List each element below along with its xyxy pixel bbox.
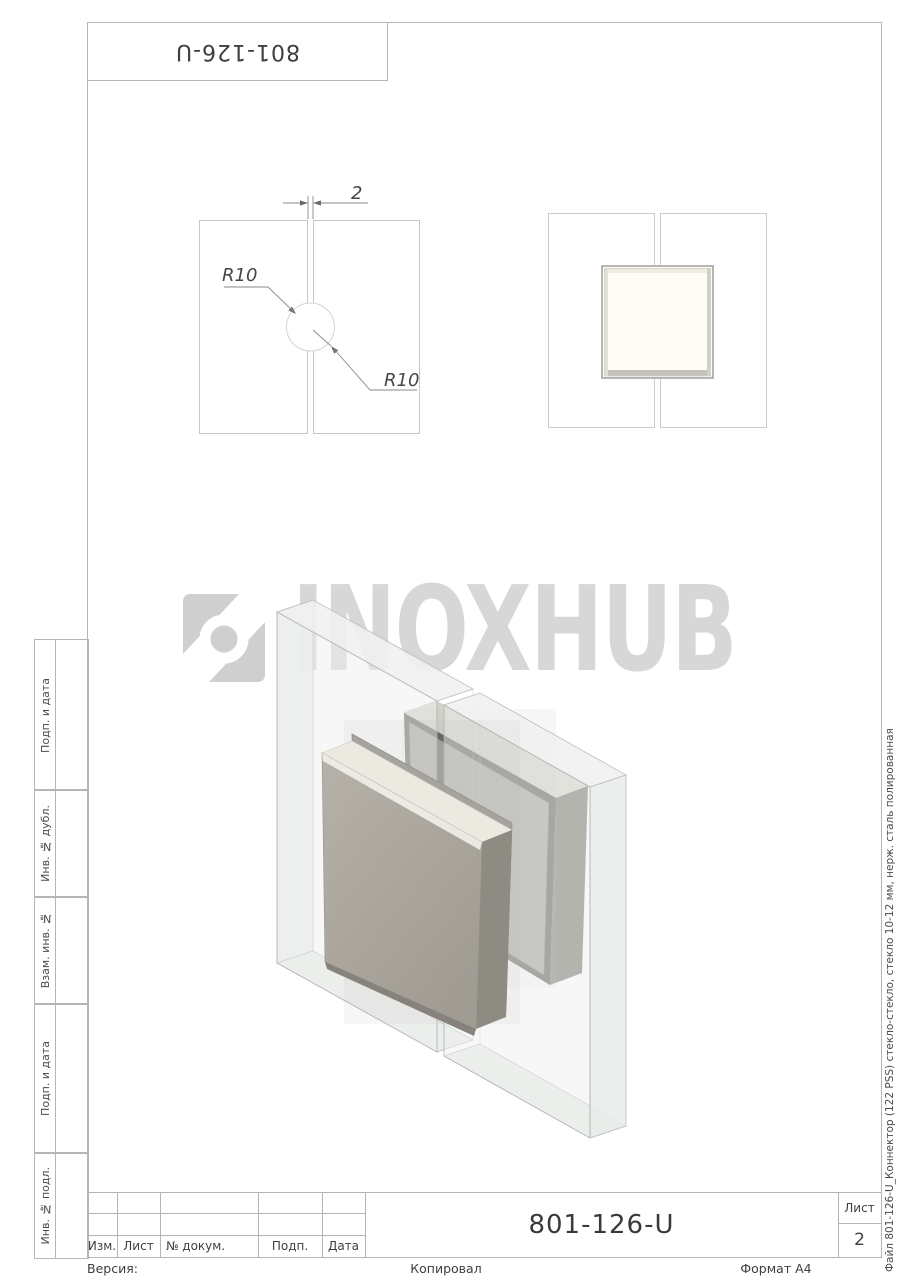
drawing-frame <box>87 22 882 1258</box>
sidebar-blank-cell <box>56 790 88 897</box>
file-note: Файл 801-126-U_Коннектор (122 PSS) стекл… <box>884 792 898 1272</box>
sidebar-label: Инв. № дубл. <box>39 805 52 882</box>
top-reference-box: 801-126-U <box>87 22 388 81</box>
sidebar-box-inv-dupl: Инв. № дубл. <box>34 789 89 898</box>
sidebar-box-sign-date-2: Подп. и дата <box>34 1003 89 1154</box>
stamp-col-list: Лист <box>117 1235 160 1257</box>
sidebar-blank-cell <box>56 1153 88 1258</box>
stamp-col-docnum: № докум. <box>160 1235 258 1257</box>
stamp-col-podp: Подп. <box>258 1235 322 1257</box>
sidebar-label-cell: Инв. № дубл. <box>35 790 56 897</box>
sidebar-label-cell: Инв. № подл. <box>35 1153 56 1258</box>
stamp-sheet-label: Лист <box>838 1192 881 1223</box>
sidebar-label: Подп. и дата <box>39 678 52 753</box>
format-label: Формат A4 <box>700 1261 852 1276</box>
stamp-line <box>87 1213 365 1214</box>
copied-label: Копировал <box>346 1261 546 1276</box>
sidebar-label-cell: Подп. и дата <box>35 1004 56 1153</box>
sidebar-blank-cell <box>56 640 88 790</box>
sidebar-box-inv-podl: Инв. № подл. <box>34 1152 89 1259</box>
top-doc-number: 801-126-U <box>175 39 300 64</box>
sidebar-blank-cell <box>56 1004 88 1153</box>
sidebar-box-vzam-inv: Взам. инв. № <box>34 896 89 1005</box>
sidebar-label: Инв. № подл. <box>39 1167 52 1244</box>
sidebar-label-cell: Взам. инв. № <box>35 897 56 1004</box>
sidebar-label: Взам. инв. № <box>39 912 52 988</box>
sidebar-box-sign-date-1: Подп. и дата <box>34 639 89 791</box>
stamp-doc-number: 801-126-U <box>365 1192 838 1257</box>
stamp-sheet-number: 2 <box>838 1223 881 1257</box>
sidebar-label-cell: Подп. и дата <box>35 640 56 790</box>
sidebar-blank-cell <box>56 897 88 1004</box>
version-label: Версия: <box>87 1261 138 1276</box>
stamp-col-izm: Изм. <box>87 1235 117 1257</box>
sidebar-label: Подп. и дата <box>39 1041 52 1116</box>
stamp-col-data: Дата <box>322 1235 365 1257</box>
